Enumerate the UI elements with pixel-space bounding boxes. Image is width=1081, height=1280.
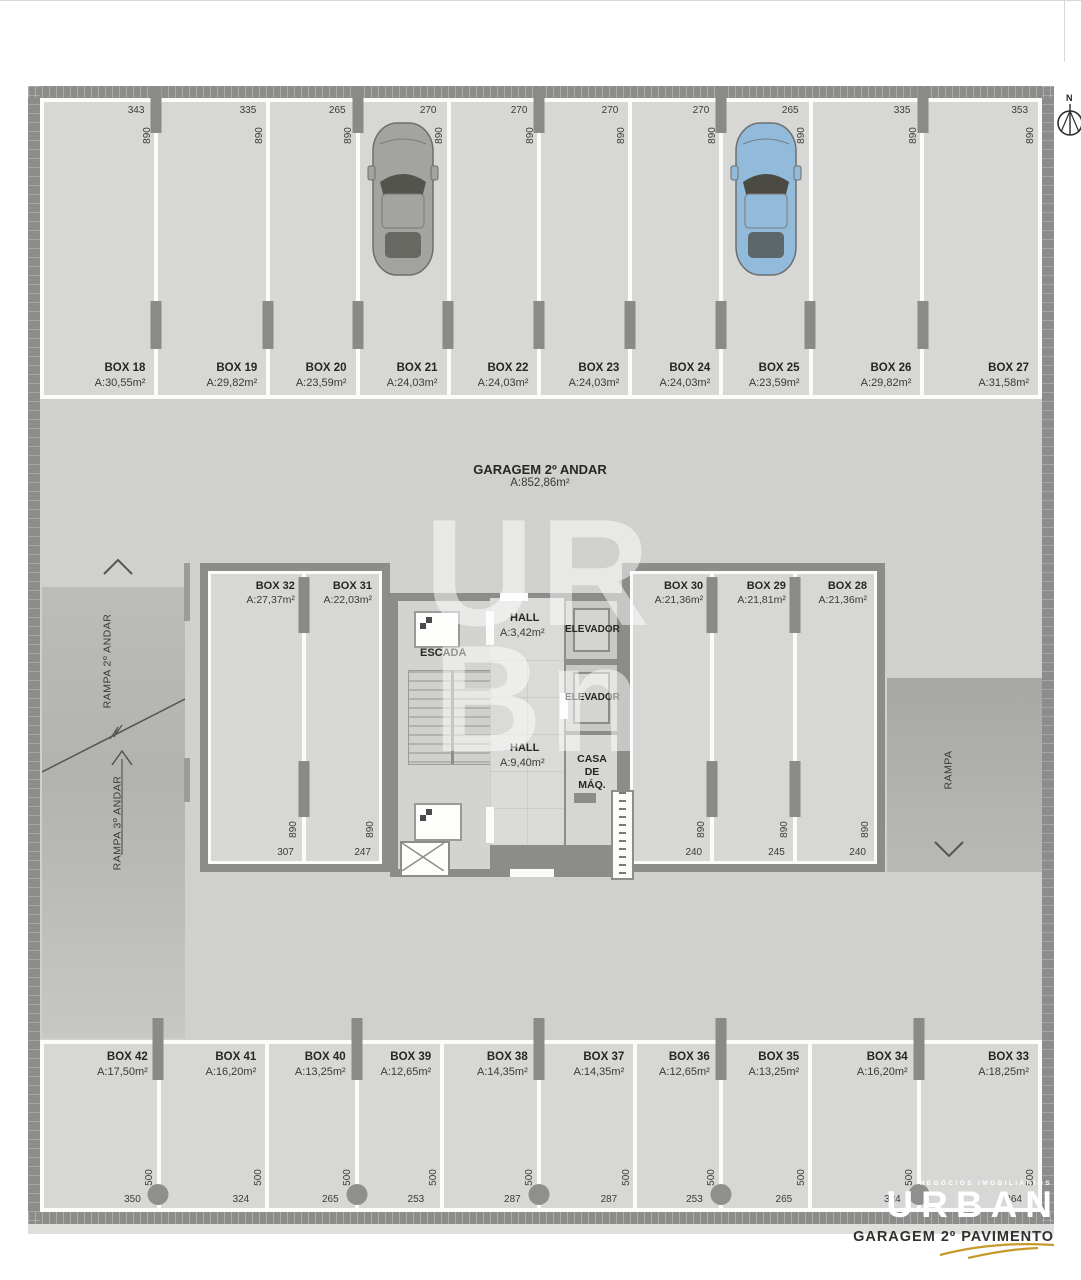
stall-area: A:29,82m² — [861, 377, 912, 389]
ramp-left-upper-label: RAMPA 2º ANDAR — [101, 614, 113, 709]
stall-depth-dim: 890 — [365, 821, 376, 838]
column-pillar — [352, 301, 363, 349]
stall-name: BOX 29 — [747, 580, 786, 592]
logo-caption: GARAGEM 2º PAVIMENTO — [824, 1229, 1054, 1245]
urban-logo: NEGÓCIOS IMOBILIÁRIOS URBAN GARAGEM 2º P… — [824, 1180, 1054, 1245]
stall-box-27: 353890BOX 27A:31,58m² — [924, 102, 1038, 395]
stall-area: A:18,25m² — [978, 1066, 1029, 1078]
stall-width-dim: 253 — [408, 1194, 425, 1205]
stall-name: BOX 23 — [578, 362, 619, 374]
logo-brand: URBAN — [824, 1187, 1060, 1223]
stall-depth-dim: 890 — [779, 821, 790, 838]
stall-width-dim: 270 — [602, 105, 619, 116]
stall-depth-dim: 500 — [620, 1169, 631, 1186]
stall-area: A:24,03m² — [478, 377, 529, 389]
stall-name: BOX 21 — [397, 362, 438, 374]
column-pillar — [443, 301, 454, 349]
stall-depth-dim: 890 — [253, 127, 264, 144]
car-top-view — [366, 120, 440, 278]
floorplan-page: 343890BOX 18A:30,55m²335890BOX 19A:29,82… — [0, 0, 1081, 1280]
stall-depth-dim: 890 — [1025, 127, 1036, 144]
stall-box-22: 270890BOX 22A:24,03m² — [451, 102, 538, 395]
stall-width-dim: 270 — [420, 105, 437, 116]
stall-box-19: 335890BOX 19A:29,82m² — [158, 102, 266, 395]
stall-name: BOX 37 — [583, 1051, 624, 1063]
column-pillar — [918, 87, 929, 133]
stall-width-dim: 270 — [511, 105, 528, 116]
column-pillar — [790, 577, 801, 633]
stall-name: BOX 27 — [988, 362, 1029, 374]
stall-width-dim: 245 — [768, 847, 785, 858]
stall-width-dim: 240 — [685, 847, 702, 858]
stall-depth-dim: 500 — [144, 1169, 155, 1186]
stall-name: BOX 34 — [867, 1051, 908, 1063]
stall-area: A:23,59m² — [296, 377, 347, 389]
stall-width-dim: 240 — [849, 847, 866, 858]
stall-depth-dim: 890 — [696, 821, 707, 838]
wall-left — [28, 86, 40, 1224]
column-pillar — [533, 1018, 544, 1080]
stall-box-26: 335890BOX 26A:29,82m² — [813, 102, 921, 395]
stall-area: A:16,20m² — [857, 1066, 908, 1078]
column-pillar — [150, 301, 161, 349]
round-column — [528, 1184, 549, 1205]
stall-width-dim: 335 — [240, 105, 257, 116]
stall-name: BOX 18 — [105, 362, 146, 374]
column-pillar — [352, 87, 363, 133]
stall-area: A:29,82m² — [207, 377, 258, 389]
ramp-right-label: RAMPA — [943, 750, 955, 789]
column-pillar — [351, 1018, 362, 1080]
stall-box-32: 307890BOX 32A:27,37m² — [211, 574, 302, 861]
compass-glyph — [1054, 96, 1081, 144]
north-label: N — [1066, 93, 1073, 103]
wall-stub-upper — [184, 563, 190, 621]
door-gap-bottom — [510, 869, 554, 877]
stall-box-20: 265890BOX 20A:23,59m² — [270, 102, 355, 395]
column-pillar — [534, 87, 545, 133]
page-right-line — [1064, 0, 1065, 62]
stall-name: BOX 33 — [988, 1051, 1029, 1063]
ramp-left: RAMPA 2º ANDAR RAMPA 3º ANDAR — [42, 587, 185, 1038]
column-pillar — [716, 301, 727, 349]
hall-upper-label: HALL — [510, 612, 539, 624]
stall-width-dim: 350 — [124, 1194, 141, 1205]
ramp-left-lower-label: RAMPA 3º ANDAR — [111, 776, 123, 871]
stall-area: A:14,35m² — [574, 1066, 625, 1078]
stall-box-40: 265500BOX 40A:13,25m² — [269, 1044, 354, 1208]
stall-name: BOX 22 — [488, 362, 529, 374]
stall-depth-dim: 500 — [342, 1169, 353, 1186]
stall-box-25: 265890 BOX 25A:23,59m² — [723, 102, 808, 395]
hydrant-icon-2 — [414, 803, 462, 841]
stall-name: BOX 30 — [664, 580, 703, 592]
stall-width-dim: 287 — [504, 1194, 521, 1205]
column-pillar — [716, 87, 727, 133]
stall-name: BOX 40 — [305, 1051, 346, 1063]
ramp-down-chevron — [929, 838, 969, 860]
stall-name: BOX 28 — [828, 580, 867, 592]
column-pillar — [153, 1018, 164, 1080]
wall-right — [1042, 86, 1054, 1224]
stair-room-label: ESCADA — [420, 647, 466, 659]
door-gap-hall — [486, 807, 494, 843]
stall-box-37: 287500BOX 37A:14,35m² — [541, 1044, 634, 1208]
north-compass-icon: N — [1054, 96, 1081, 144]
stall-area: A:21,36m² — [655, 594, 703, 606]
garage-plan: 343890BOX 18A:30,55m²335890BOX 19A:29,82… — [28, 86, 1054, 1224]
stall-width-dim: 343 — [128, 105, 145, 116]
stall-name: BOX 36 — [669, 1051, 710, 1063]
round-column — [710, 1184, 731, 1205]
stall-area: A:21,81m² — [737, 594, 785, 606]
machine-room: CASA DE MÁQ. — [566, 735, 617, 845]
stall-area: A:17,50m² — [97, 1066, 148, 1078]
stall-box-23: 270890BOX 23A:24,03m² — [541, 102, 628, 395]
elevator-2-label: ELEVADOR — [565, 692, 620, 703]
column-pillar — [299, 577, 310, 633]
stall-width-dim: 270 — [693, 105, 710, 116]
stall-name: BOX 32 — [256, 580, 295, 592]
machine-room-label: CASA DE MÁQ. — [570, 753, 614, 792]
block-box-30-29-28: 240890BOX 30A:21,36m²245890BOX 29A:21,81… — [622, 563, 885, 872]
floor-title-area: A:852,86m² — [370, 477, 710, 489]
stall-box-36: 253500BOX 36A:12,65m² — [637, 1044, 719, 1208]
stall-depth-dim: 890 — [616, 127, 627, 144]
ramp-right: RAMPA — [887, 678, 1042, 872]
shaft-x-box — [400, 841, 450, 877]
floor-title: GARAGEM 2º ANDAR A:852,86m² — [370, 462, 710, 489]
elevator-1-label: ELEVADOR — [565, 624, 620, 635]
stall-width-dim: 353 — [1011, 105, 1028, 116]
stall-name: BOX 26 — [871, 362, 912, 374]
stall-width-dim: 265 — [329, 105, 346, 116]
stall-width-dim: 253 — [686, 1194, 703, 1205]
stair-room: ESCADA — [398, 601, 490, 869]
stall-area: A:24,03m² — [387, 377, 438, 389]
round-column — [346, 1184, 367, 1205]
stall-box-39: 253500BOX 39A:12,65m² — [359, 1044, 441, 1208]
elevator-shaft-2: ELEVADOR — [566, 665, 617, 731]
stall-box-18: 343890BOX 18A:30,55m² — [44, 102, 154, 395]
stall-box-29: 245890BOX 29A:21,81m² — [714, 574, 793, 861]
stall-depth-dim: 500 — [252, 1169, 263, 1186]
stall-area: A:12,65m² — [380, 1066, 431, 1078]
stall-box-41: 324500BOX 41A:16,20m² — [161, 1044, 265, 1208]
hall-upper: HALL A:3,42m² — [490, 598, 564, 660]
stairs — [408, 670, 494, 765]
hall-upper-area: A:3,42m² — [500, 627, 545, 639]
page-top-line — [0, 0, 1081, 1]
floor-title-label: GARAGEM 2º ANDAR — [370, 462, 710, 477]
stall-name: BOX 20 — [306, 362, 347, 374]
stall-depth-dim: 890 — [288, 821, 299, 838]
stall-width-dim: 265 — [322, 1194, 339, 1205]
stall-area: A:14,35m² — [477, 1066, 528, 1078]
stall-depth-dim: 500 — [795, 1169, 806, 1186]
column-pillar — [534, 301, 545, 349]
stall-area: A:27,37m² — [246, 594, 294, 606]
vent-grate — [611, 790, 634, 880]
stall-box-28: 240890BOX 28A:21,36m² — [797, 574, 874, 861]
stall-area: A:23,59m² — [749, 377, 800, 389]
round-column — [148, 1184, 169, 1205]
hall-lower-label: HALL — [510, 742, 539, 754]
stall-name: BOX 42 — [107, 1051, 148, 1063]
hall-lower-area: A:9,40m² — [500, 757, 545, 769]
stall-area: A:12,65m² — [659, 1066, 710, 1078]
stall-depth-dim: 500 — [706, 1169, 717, 1186]
stall-area: A:24,03m² — [660, 377, 711, 389]
column-pillar — [299, 761, 310, 817]
column-pillar — [805, 301, 816, 349]
column-pillar — [625, 301, 636, 349]
stall-name: BOX 25 — [759, 362, 800, 374]
stall-depth-dim: 890 — [860, 821, 871, 838]
stall-width-dim: 287 — [601, 1194, 618, 1205]
stall-area: A:31,58m² — [978, 377, 1029, 389]
stall-width-dim: 335 — [894, 105, 911, 116]
stall-box-30: 240890BOX 30A:21,36m² — [633, 574, 710, 861]
stall-box-31: 247890BOX 31A:22,03m² — [306, 574, 379, 861]
parking-row-top: 343890BOX 18A:30,55m²335890BOX 19A:29,82… — [40, 98, 1042, 399]
ramp-up-chevron — [98, 556, 138, 578]
column-pillar — [790, 761, 801, 817]
car-top-view — [729, 120, 803, 278]
stall-name: BOX 19 — [216, 362, 257, 374]
stall-area: A:22,03m² — [324, 594, 372, 606]
stall-name: BOX 38 — [487, 1051, 528, 1063]
stall-name: BOX 39 — [390, 1051, 431, 1063]
stall-depth-dim: 500 — [427, 1169, 438, 1186]
column-pillar — [706, 577, 717, 633]
stall-depth-dim: 500 — [524, 1169, 535, 1186]
stall-width-dim: 265 — [782, 105, 799, 116]
stall-box-35: 265500BOX 35A:13,25m² — [723, 1044, 808, 1208]
column-pillar — [263, 301, 274, 349]
hall-lower: HALL A:9,40m² — [490, 660, 564, 845]
column-pillar — [715, 1018, 726, 1080]
column-pillar — [914, 1018, 925, 1080]
stall-width-dim: 324 — [233, 1194, 250, 1205]
stall-area: A:13,25m² — [748, 1066, 799, 1078]
logo-swoosh — [938, 1239, 1058, 1259]
stall-box-42: 350500BOX 42A:17,50m² — [44, 1044, 157, 1208]
stall-width-dim: 265 — [776, 1194, 793, 1205]
elevator-shaft-1: ELEVADOR — [566, 601, 617, 659]
stall-area: A:30,55m² — [95, 377, 146, 389]
core-block: ESCADA HALL A:3,42m² ELEVADOR ELEVADOR H… — [390, 593, 625, 877]
stall-area: A:24,03m² — [569, 377, 620, 389]
door-gap-escada — [486, 611, 494, 645]
hydrant-icon — [414, 611, 460, 648]
stall-area: A:21,36m² — [819, 594, 867, 606]
stall-area: A:16,20m² — [206, 1066, 257, 1078]
stall-name: BOX 35 — [758, 1051, 799, 1063]
door-gap-top — [500, 593, 528, 601]
stall-name: BOX 24 — [669, 362, 710, 374]
block-box-32-31: 307890BOX 32A:27,37m²247890BOX 31A:22,03… — [200, 563, 390, 872]
machine-equipment — [574, 793, 596, 803]
stall-box-21: 270890 BOX 21A:24,03m² — [360, 102, 447, 395]
column-pillar — [918, 301, 929, 349]
column-pillar — [150, 87, 161, 133]
stall-name: BOX 41 — [215, 1051, 256, 1063]
stall-box-38: 287500BOX 38A:14,35m² — [444, 1044, 537, 1208]
stall-area: A:13,25m² — [295, 1066, 346, 1078]
wall-stub-lower — [184, 758, 190, 802]
stall-box-24: 270890BOX 24A:24,03m² — [632, 102, 719, 395]
stall-name: BOX 31 — [333, 580, 372, 592]
stall-width-dim: 307 — [277, 847, 294, 858]
stall-width-dim: 247 — [354, 847, 371, 858]
column-pillar — [706, 761, 717, 817]
